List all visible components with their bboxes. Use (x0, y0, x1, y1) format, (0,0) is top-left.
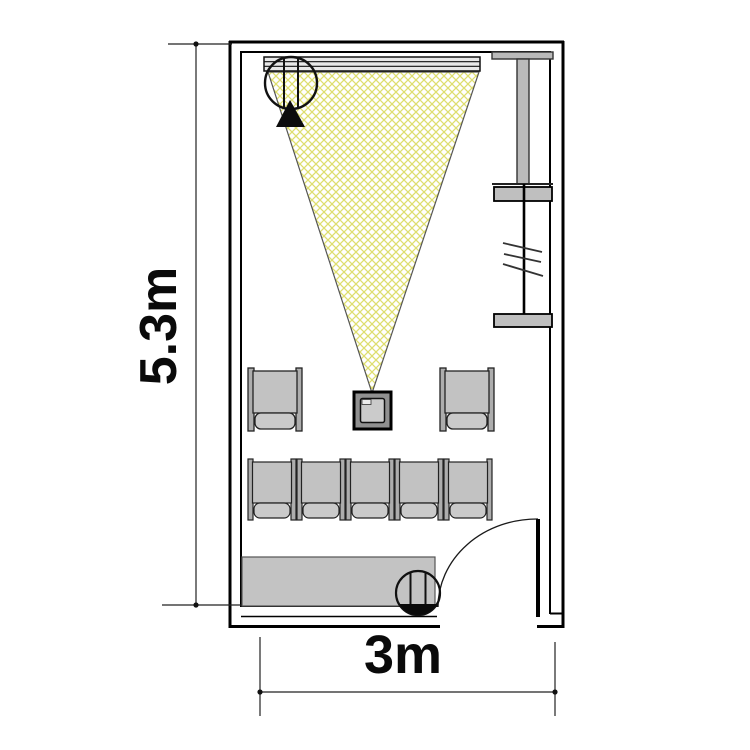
chair (395, 459, 443, 520)
dimension-tick (257, 689, 262, 694)
sideboard-table (242, 557, 435, 606)
panel-lower-box (494, 314, 552, 327)
chair (440, 368, 494, 431)
width-dimension-label: 3m (364, 625, 442, 685)
chair (297, 459, 345, 520)
speaker-base-segment (399, 604, 437, 615)
door (438, 519, 538, 617)
floor-plan: 5.3m 3m (0, 0, 750, 750)
projection-screen (264, 57, 480, 71)
floor-plan-drawing: 5.3m 3m (0, 0, 750, 750)
dimension-width: 3m (257, 625, 557, 716)
panel-vertical-bar (517, 59, 529, 184)
chair (444, 459, 492, 520)
dimension-height: 5.3m (130, 41, 241, 607)
projector (354, 392, 391, 429)
dimension-tick (552, 689, 557, 694)
door-swing-arc (438, 519, 538, 607)
wall-panel-assembly (492, 52, 553, 327)
height-dimension-label: 5.3m (130, 267, 188, 386)
panel-top-cap (492, 52, 553, 59)
dimension-tick (193, 602, 198, 607)
chair (248, 459, 296, 520)
projector-lens (362, 400, 371, 405)
dimension-tick (193, 41, 198, 46)
chair (248, 368, 302, 431)
chair (346, 459, 394, 520)
